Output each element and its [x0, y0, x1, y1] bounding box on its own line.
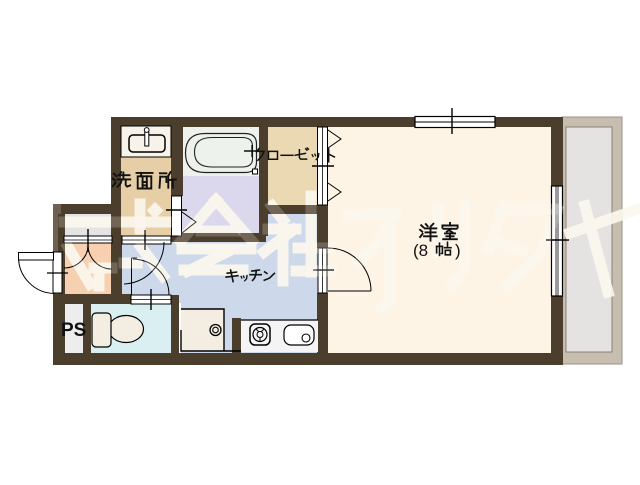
svg-text:PS: PS	[61, 320, 86, 341]
svg-text:): )	[455, 241, 461, 260]
svg-text:(8: (8	[413, 241, 428, 260]
